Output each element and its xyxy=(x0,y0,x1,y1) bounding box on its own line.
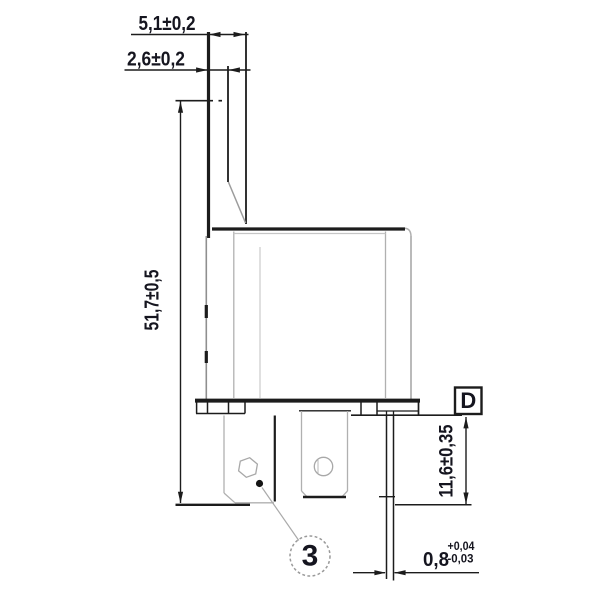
drawing-canvas: 5,1±0,2 2,6±0,2 51,7±0,5 11,6±0,35 D 0,8 xyxy=(0,0,600,600)
terminal-left-hex-hole xyxy=(239,458,258,478)
callout-anchor-dot xyxy=(256,480,263,487)
pin-terminal xyxy=(379,415,395,580)
dim-label-bracket-top-width: 5,1±0,2 xyxy=(139,13,196,35)
dim-arrow-left xyxy=(209,32,221,37)
dim-label-overall-height: 51,7±0,5 xyxy=(142,270,164,331)
dimension-pin-thickness: 0,8 +0,04 -0,03 xyxy=(353,539,479,575)
terminal-middle-round-hole xyxy=(314,457,332,475)
position-callout: 3 xyxy=(262,488,330,577)
dim-label-pin-thickness: 0,8 xyxy=(423,549,449,571)
dim-arrow-left xyxy=(196,67,208,72)
callout-number: 3 xyxy=(302,540,319,573)
detail-marker: D xyxy=(455,388,482,415)
dim-label-pin-tol-minus: -0,03 xyxy=(448,552,474,566)
dim-arrow-right xyxy=(374,570,386,575)
dimension-bracket-top-width: 5,1±0,2 xyxy=(131,13,249,37)
callout-leader-line xyxy=(262,488,299,541)
dim-arrow-down xyxy=(463,493,468,505)
dim-arrow-up xyxy=(178,101,183,113)
bracket-bend-line xyxy=(228,182,245,223)
dimension-terminal-length: 11,6±0,35 xyxy=(395,417,472,505)
detail-marker-label: D xyxy=(460,388,476,413)
terminal-left-chamfer xyxy=(224,493,235,503)
body-top-right-corner xyxy=(405,228,411,236)
dim-arrow-left xyxy=(394,570,406,575)
dim-arrow-right xyxy=(228,67,240,72)
dim-label-bracket-thickness: 2,6±0,2 xyxy=(127,49,185,71)
dim-arrow-right xyxy=(234,32,246,37)
dimension-bracket-thickness: 2,6±0,2 xyxy=(125,49,251,73)
mounting-bracket xyxy=(209,32,247,238)
dim-label-terminal-length: 11,6±0,35 xyxy=(437,424,458,497)
dim-arrow-up xyxy=(463,417,468,429)
relay-technical-drawing: 5,1±0,2 2,6±0,2 51,7±0,5 11,6±0,35 D 0,8 xyxy=(0,0,600,600)
base-plate xyxy=(196,403,462,416)
dim-arrow-down xyxy=(178,492,183,504)
terminal-middle xyxy=(302,411,348,497)
relay-body xyxy=(195,228,420,400)
terminal-left xyxy=(224,416,275,503)
